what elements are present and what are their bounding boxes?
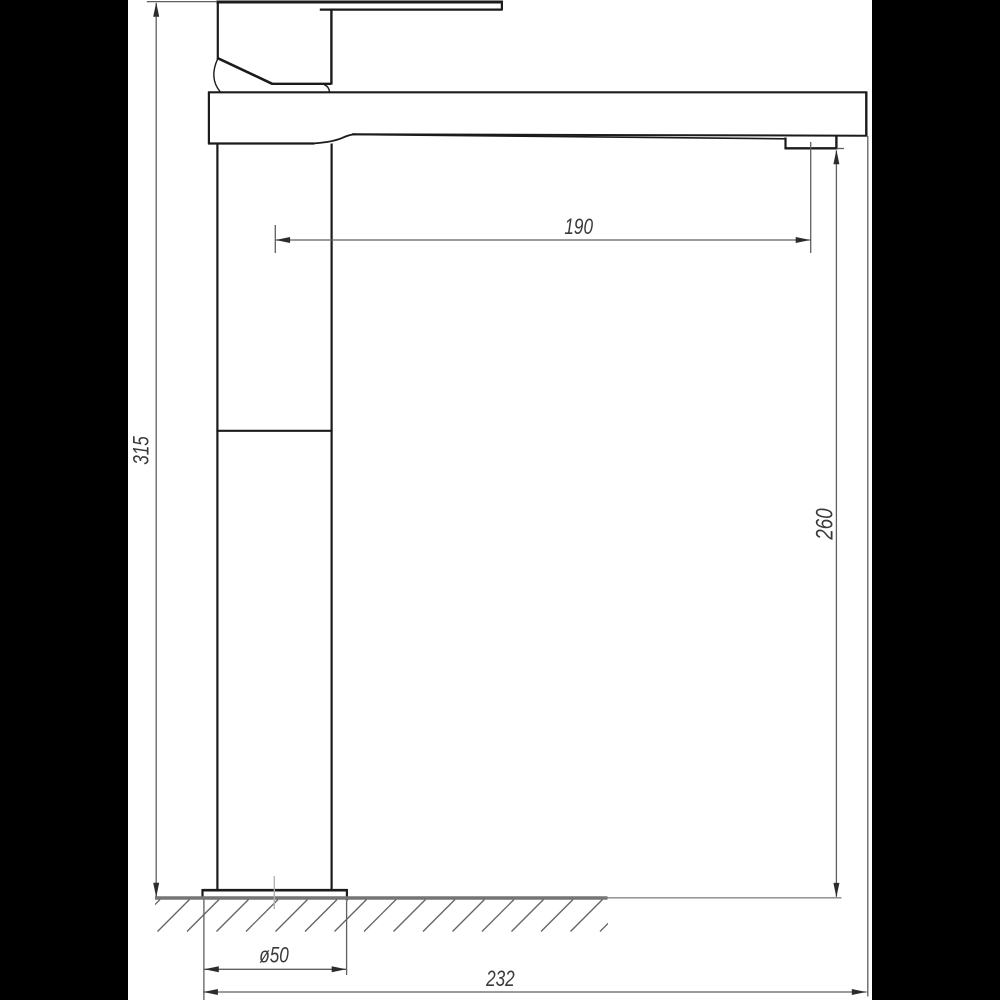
svg-text:232: 232 xyxy=(485,967,515,992)
svg-text:260: 260 xyxy=(811,508,838,540)
svg-text:190: 190 xyxy=(564,215,593,240)
svg-text:ø50: ø50 xyxy=(259,944,289,969)
svg-text:315: 315 xyxy=(130,435,155,465)
